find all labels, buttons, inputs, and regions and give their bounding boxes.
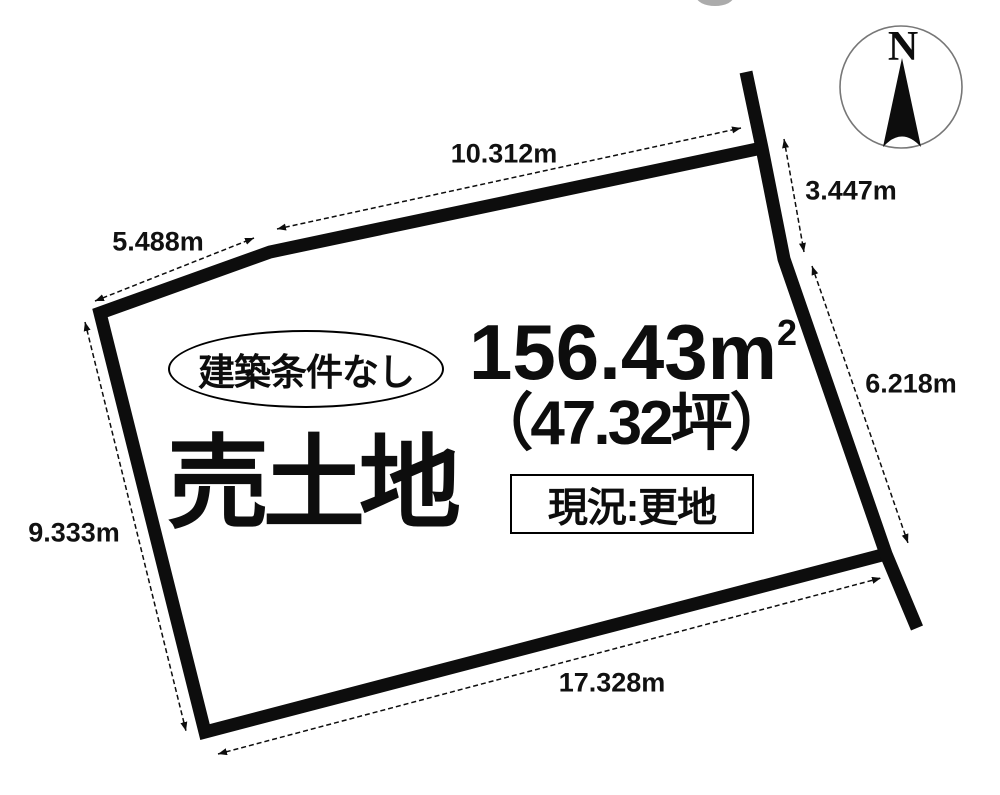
dimension-line-right-lower (812, 266, 908, 543)
dimension-label-top: 10.312m (451, 139, 558, 170)
dimension-label-left: 9.333m (28, 518, 120, 549)
dimension-line-bottom (218, 578, 881, 754)
condition-badge-label: 建築条件なし (198, 342, 414, 396)
area-tsubo: （47.32坪） (471, 393, 788, 455)
cropped-top-artifact (696, 0, 734, 6)
land-plot-diagram: N 10.312m 5.488m 3.447m 6.218m 9.333m 17… (0, 0, 1000, 795)
dimension-label-right-upper: 3.447m (805, 176, 897, 207)
status-box: 現況:更地 (510, 474, 754, 534)
dimension-label-right-lower: 6.218m (865, 369, 957, 400)
area-square-meters: 156.43m2 (469, 313, 797, 391)
compass: N (840, 24, 962, 148)
compass-needle-icon (883, 58, 921, 147)
area-square-meters-value: 156.43m (469, 308, 777, 396)
condition-badge: 建築条件なし (168, 330, 444, 408)
area-square-meters-exponent: 2 (777, 312, 797, 353)
dimension-label-bottom: 17.328m (559, 668, 666, 699)
status-label: 現況:更地 (548, 475, 716, 533)
dimension-label-top-left: 5.488m (112, 227, 204, 258)
dimension-line-right-upper (784, 139, 804, 252)
sale-title: 売土地 (167, 433, 455, 535)
